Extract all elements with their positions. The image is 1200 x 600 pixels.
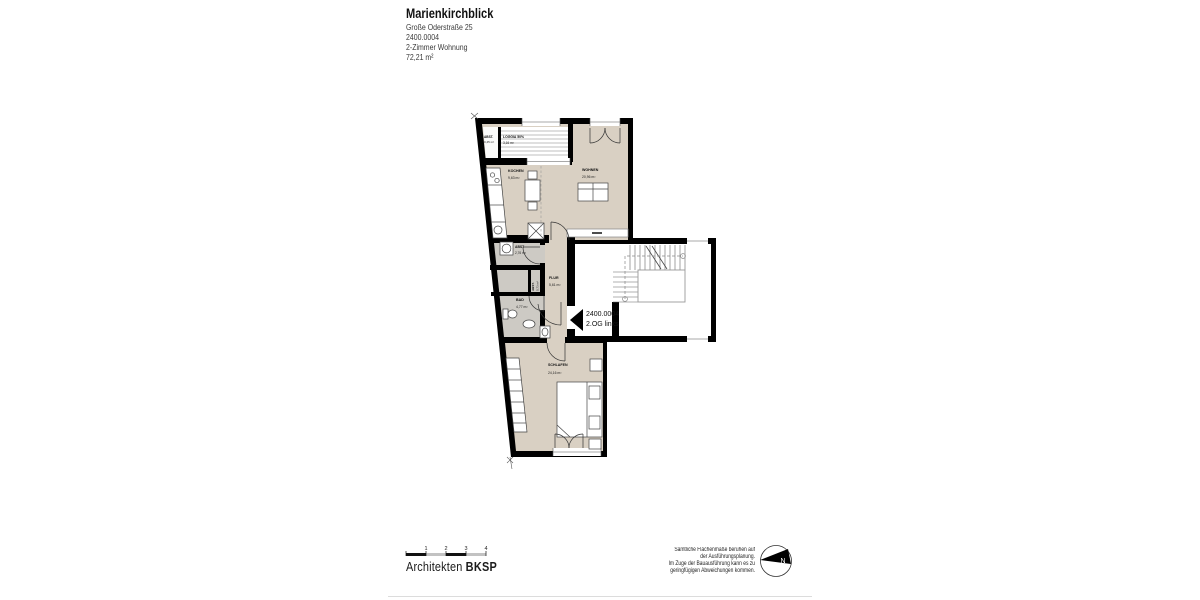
svg-text:0,45 m²: 0,45 m² <box>484 140 494 144</box>
kitchen-loggia-window <box>527 158 570 165</box>
scale-segments <box>406 551 486 556</box>
wall-stair-stub <box>612 302 619 338</box>
page-title: Marienkirchblick <box>406 6 493 22</box>
north-label: N <box>780 558 785 565</box>
svg-text:20,96 m²: 20,96 m² <box>582 175 596 179</box>
label-kochen: KOCHEN <box>508 169 524 173</box>
disclaimer-line: Im Zuge der Bauausführung kann es zu <box>640 561 755 568</box>
svg-text:3,16 m²: 3,16 m² <box>503 141 514 145</box>
disclaimer-line: Sämtliche Flächenmaße beruhen auf <box>640 547 755 554</box>
nightstand <box>589 439 601 449</box>
opening-kitchen-hall <box>549 235 567 243</box>
unit-label-line1: 2400.0004 <box>586 311 619 318</box>
bath-unit <box>540 326 550 338</box>
firm-name: Architekten BKSP <box>406 559 497 574</box>
label-abst: ABST <box>515 245 525 249</box>
svg-text:24,16 m²: 24,16 m² <box>548 371 562 375</box>
firm-name-regular: Architekten <box>406 559 462 574</box>
total-area: 72,21 m² <box>406 52 493 62</box>
label-bad: BAD <box>516 298 524 302</box>
disclaimer-line: der Ausführungsplanung. <box>640 554 755 561</box>
wall-abst-loggia <box>498 127 501 160</box>
floorplan-document: Marienkirchblick Große Oderstraße 25 240… <box>0 0 1200 600</box>
disclaimer: Sämtliche Flächenmaße beruhen auf der Au… <box>640 547 755 575</box>
north-arrow-icon: N <box>757 543 795 581</box>
label-wohnen: WOHNEN <box>582 168 599 172</box>
loggia-window <box>522 118 560 126</box>
bed <box>557 382 602 437</box>
footer-rule <box>388 596 812 597</box>
label-loggia: LOGGIA 50% <box>503 135 524 139</box>
dresser <box>590 359 602 371</box>
wall-abst-bottom <box>490 265 545 270</box>
sideboard-radiator <box>567 229 628 237</box>
svg-text:4,77 m²: 4,77 m² <box>516 305 528 309</box>
apartment-type: 2-Zimmer Wohnung <box>406 42 493 52</box>
opening-abst <box>540 245 545 263</box>
stairwell-window-top <box>687 238 708 244</box>
disclaimer-line: geringfügigen Abweichungen kommen. <box>640 568 755 575</box>
wall-bad-top <box>491 292 545 296</box>
toilet <box>503 309 517 319</box>
bath-sink <box>523 320 535 328</box>
stairwell-window-bottom <box>687 336 708 342</box>
hall-floor <box>542 243 567 337</box>
unit-label-line2: 2.OG links <box>586 321 619 328</box>
wall-loggia-right <box>568 124 573 162</box>
washing-machine <box>500 242 513 255</box>
unit-number: 2400.0004 <box>406 32 493 42</box>
label-abst-loggia: ABST. <box>484 135 493 139</box>
svg-text:5,61 m²: 5,61 m² <box>549 283 561 287</box>
header: Marienkirchblick Große Oderstraße 25 240… <box>406 6 493 62</box>
firm-name-bold: BKSP <box>466 559 497 574</box>
label-flur: FLUR <box>549 276 559 280</box>
sofa <box>578 183 608 201</box>
svg-text:0,73 m²: 0,73 m² <box>536 281 540 291</box>
svg-text:9,63 m²: 9,63 m² <box>508 176 520 180</box>
label-schlafen: SCHLAFEN <box>548 363 568 367</box>
address-line: Große Oderstraße 25 <box>406 22 493 32</box>
svg-text:2,76 m²: 2,76 m² <box>515 251 526 255</box>
shaft-box <box>528 223 544 239</box>
label-abst-small: ABST. <box>531 282 535 291</box>
wohnen-balcony-opening <box>590 118 620 126</box>
floor-plan: ABST. 0,45 m² LOGGIA 50% 3,16 m² KOCHEN … <box>470 110 720 470</box>
